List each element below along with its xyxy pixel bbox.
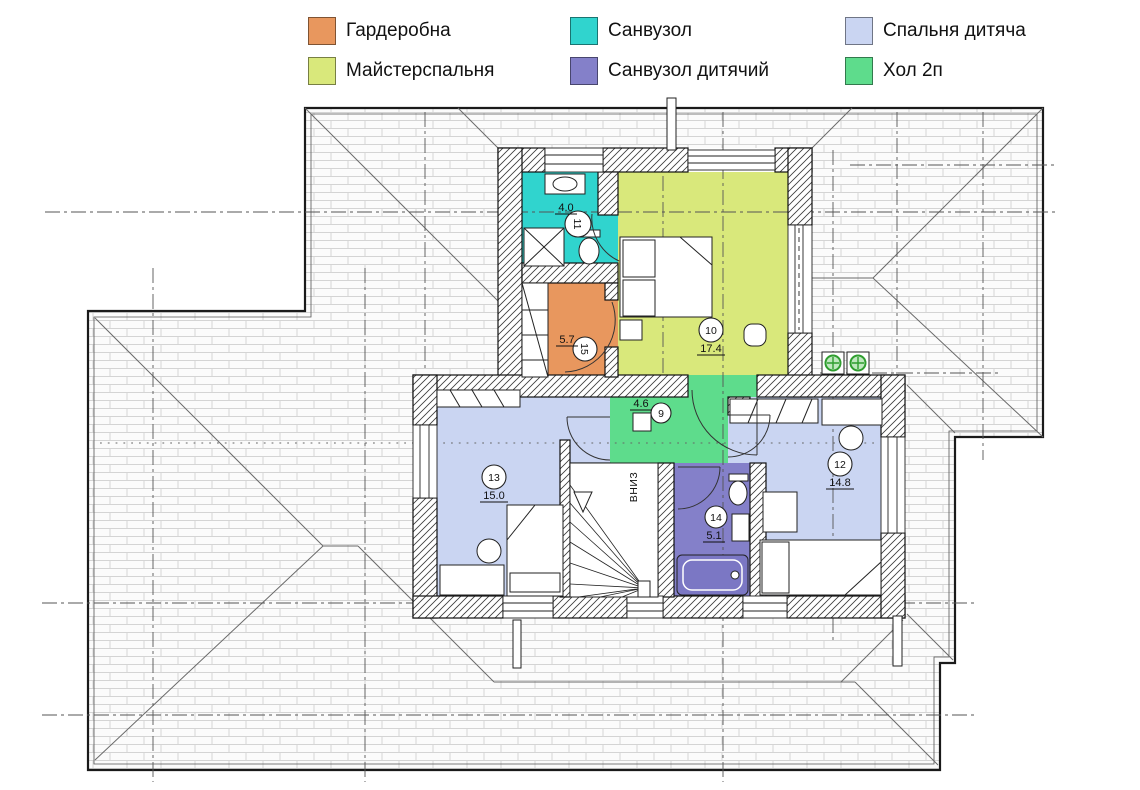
vent-pipe-icon — [667, 98, 676, 150]
single-bed-icon — [507, 505, 563, 596]
room-area: 17.4 — [700, 343, 721, 355]
floor-plan-page: Гардеробна Майстерспальня Санвузол Санву… — [0, 0, 1140, 790]
sink-icon — [732, 514, 749, 541]
wall — [413, 375, 437, 425]
window — [788, 225, 812, 333]
window — [413, 425, 437, 498]
toilet-icon — [729, 474, 748, 505]
stairs — [570, 463, 658, 597]
window — [881, 437, 905, 533]
nightstand-icon — [620, 320, 642, 340]
chair-icon — [477, 539, 501, 563]
wall — [553, 596, 627, 618]
wall — [658, 463, 674, 597]
dresser-icon — [763, 492, 797, 532]
room-number: 9 — [658, 408, 664, 420]
desk-icon — [822, 399, 882, 425]
wall — [603, 148, 688, 172]
room-label-master: 10 17.4 — [697, 318, 725, 355]
room-label-child-left: 13 15.0 — [480, 465, 508, 502]
closet-strip — [730, 399, 818, 423]
stairs-down-label: ВНИЗ — [628, 472, 640, 502]
wall — [663, 596, 743, 618]
vent-pipe-icon — [513, 620, 521, 668]
wall — [413, 596, 503, 618]
room-area: 14.8 — [829, 477, 850, 489]
room-hall-door-gap — [688, 375, 757, 397]
roof-vent-icon — [847, 352, 869, 374]
room-number: 10 — [705, 325, 717, 337]
room-number: 12 — [834, 459, 846, 471]
pouf-icon — [744, 324, 766, 346]
sink-icon — [545, 174, 585, 194]
closet-shelves — [522, 283, 548, 377]
stair-post — [638, 581, 650, 597]
room-area: 4.0 — [558, 202, 573, 214]
room-wardrobe-fill — [548, 283, 605, 377]
room-number: 11 — [571, 219, 583, 230]
room-area: 4.6 — [633, 398, 648, 410]
window — [545, 148, 603, 172]
wall — [881, 375, 905, 437]
closet-strip — [437, 390, 520, 407]
floor-plan-drawing: 11 4.0 15 5.7 10 17.4 9 4.6 — [0, 0, 1140, 790]
shower-icon — [524, 228, 564, 266]
window — [503, 596, 553, 618]
desk-icon — [440, 565, 504, 595]
wall — [598, 172, 618, 215]
wall — [881, 533, 905, 618]
duct-icon — [633, 413, 651, 431]
room-area: 15.0 — [483, 490, 504, 502]
wall — [788, 148, 812, 225]
wall — [605, 347, 618, 377]
chair-icon — [839, 426, 863, 450]
room-label-child-right: 12 14.8 — [826, 452, 854, 489]
window — [627, 596, 663, 618]
room-area: 5.1 — [706, 530, 721, 542]
wall — [498, 148, 522, 377]
double-bed-icon — [620, 237, 712, 317]
room-number: 13 — [488, 472, 500, 484]
window — [743, 596, 787, 618]
single-bed-icon — [760, 540, 881, 595]
room-number: 14 — [710, 512, 722, 524]
roof-vent-icon — [822, 352, 844, 374]
wall — [605, 283, 618, 300]
bathtub-icon — [677, 555, 748, 595]
window — [688, 150, 775, 170]
room-bathroom-door-gap — [598, 215, 618, 263]
vent-pipe-icon — [893, 616, 902, 666]
room-number: 15 — [578, 343, 590, 355]
room-area: 5.7 — [559, 334, 574, 346]
